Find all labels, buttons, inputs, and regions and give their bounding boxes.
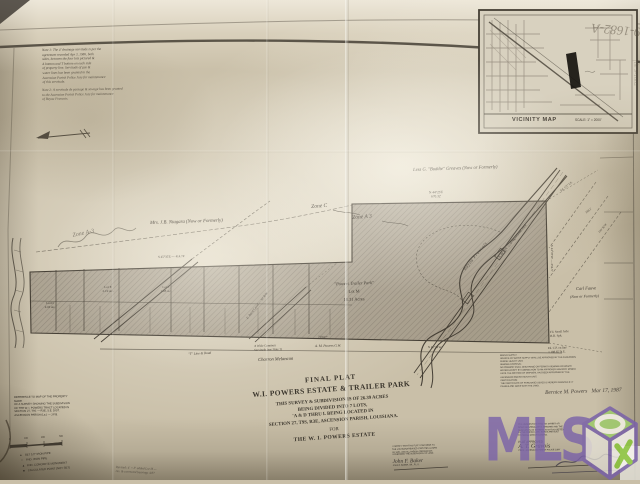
flood-zone-c-label: Zone C [311,203,327,211]
vicinity-map-scale: SCALE: 1" = 2000' [575,119,601,123]
flood-zone-a3-label: Zone A 3 [352,214,372,222]
tie-small-axle: Fd. Small Axle R.R. Spk. [550,330,569,338]
photo-of-survey-plat: { "photo": { "corner_number": "9-1682-A"… [0,0,640,480]
surveyor-certification: I CERTIFY THAT THIS PLAT CONFORMS TO THE… [392,444,455,467]
mls-logo-text: MLS [484,410,593,470]
subdivision-parcels [30,201,562,353]
scale-tick-300: 300 [59,435,63,438]
mls-box-icon [580,404,640,484]
dim-bottom: 719.67' [318,336,327,340]
left-road-band [11,238,24,348]
powers-gw-label: A. M. Powers G.W. [315,344,341,349]
lot-d-label: Lot D 2.10 Ac. [40,302,60,309]
servitude-note: 4' Wide Common Servitude (see Note 1) [254,344,282,352]
owner-label-carl-fauve: Carl Fauve [576,285,596,291]
dim-block-top: N 44°25'E 670.32' [416,190,456,200]
scale-tick-200: 200 [41,436,45,439]
dim-bottom-right: N 45°14'W [428,346,442,350]
reference-note: REFERENCE TO MAP OF THE PROPERTY MADE OF… [14,395,70,417]
health-unit-notes: WATER SUPPLY: SOURCE OF WATER SUPPLY SHA… [500,353,633,389]
legend-symbol-set-iron-pipe: ● [20,453,24,457]
title-block: FINAL PLAT W.I. POWERS ESTATE & TRAILER … [238,368,427,447]
owner-signature-name: Bernice M. Powers [545,389,587,396]
legend-symbol-fnd-iron-pipe: ○ [21,458,25,462]
pencil-edge-number: file 9-1682 [631,60,638,86]
north-arrow-icon [36,129,90,139]
scale-tick-100: 100 [24,437,28,440]
mls-watermark: MLS [480,404,640,482]
note-2: Note 2: A servitude de passage & sewage … [42,86,152,102]
surveyor-cert-text: I CERTIFY THAT THIS PLAT CONFORMS TO THE… [392,444,454,457]
note-1: Note 1: The 4' drainage servitude is per… [42,46,135,84]
graphic-scale-bar [10,440,62,449]
lot-e-label: Lot E 2.19 Ac. [97,286,119,294]
right-of-way-dashes [546,170,621,352]
legend-symbol-concrete-monument: ▲ [22,463,26,467]
dim-right-edge: S 44°35'W — 254.5' [549,245,553,271]
lot-f-label: Lot F 1.98 Ac. [155,286,177,294]
owner-signature-date: Mar 17, 1987 [591,387,621,394]
scale-tick-0: 0 [9,438,10,441]
legend-symbol-calculated-point: ■ [23,468,27,472]
vicinity-map-title: VICINITY MAP [512,117,557,124]
